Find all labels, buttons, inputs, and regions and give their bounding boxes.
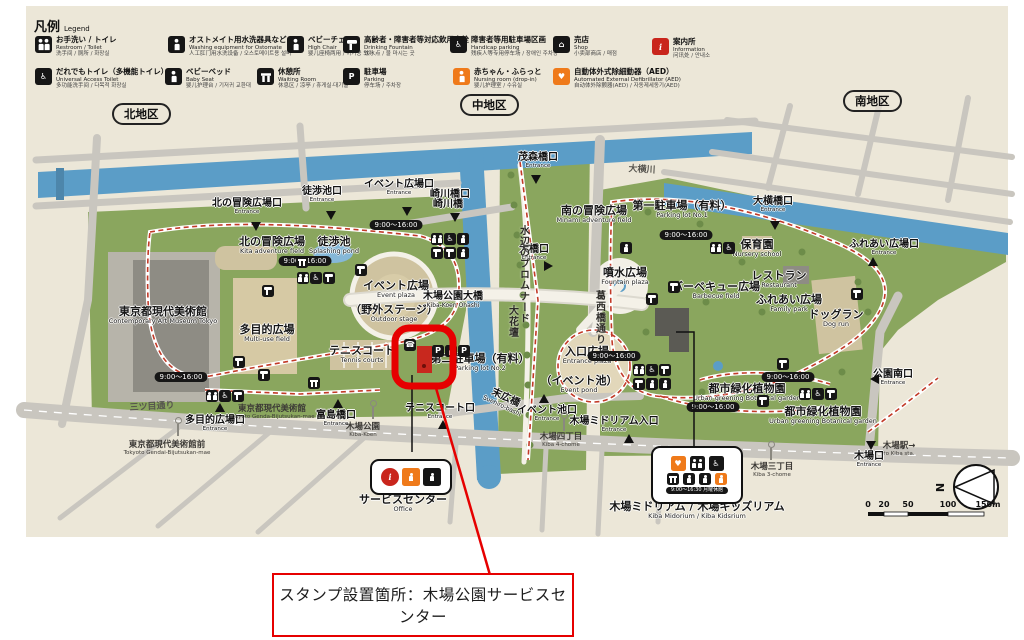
universal-access-toilet-icon: ♿ <box>35 68 52 85</box>
scale-tick-150: 150m <box>975 500 1000 509</box>
aed-icon: ♥ <box>553 68 570 85</box>
legend-item-universal-toilet: ♿だれでもトイレ（多機能トイレ）Universal Access Toilet多… <box>35 68 168 89</box>
legend-item-aed: ♥自動体外式除細動器（AED）Automated External Defibr… <box>553 68 681 89</box>
museum-block <box>108 252 220 402</box>
nursing-room-icon <box>715 473 727 485</box>
restroom-icon <box>35 36 52 53</box>
baby-care-icon <box>423 468 441 486</box>
scale-tick-0: 0 <box>865 500 871 509</box>
ostomate-icon <box>683 473 695 485</box>
legend-item-information: i案内所Information问讯处 / 안내소 <box>652 38 710 59</box>
legend-item-rest-area: 休憩所Waiting Room休息区 / 凉亭 / 휴게실·대기실 <box>257 68 348 89</box>
district-label-center: 中地区 <box>460 94 519 116</box>
scale-bar <box>868 512 984 516</box>
park-map-page: 凡例Legend お手洗い / トイレRestroom / Toilet洗手间 … <box>0 0 1024 640</box>
parking-icon: P <box>343 68 360 85</box>
ostomate-icon <box>168 36 185 53</box>
nursing-room-icon <box>453 68 470 85</box>
legend-item-parking: P駐車場Parking停车场 / 주차장 <box>343 68 401 89</box>
drinking-fountain-icon <box>343 36 360 53</box>
legend-item-restroom: お手洗い / トイレRestroom / Toilet洗手间 / 厕所 / 화장… <box>35 36 116 57</box>
restroom-icon <box>690 456 705 471</box>
information-icon: i <box>652 38 669 55</box>
scale-tick-50: 50 <box>902 500 913 509</box>
waiting-room-icon <box>257 68 274 85</box>
high-chair-icon <box>287 36 304 53</box>
legend-title-en: Legend <box>64 25 90 33</box>
legend-item-nursing: 赤ちゃん・ふらっとNursing room (drop-in)婴儿护理室 / 수… <box>453 68 542 89</box>
aed-icon: ♥ <box>671 456 686 471</box>
kiba-midorium-icon-box: ♥ ♿ 9:00～16:30 月曜休館 <box>651 446 743 504</box>
midorium-hours-badge: 9:00～16:30 月曜休館 <box>666 487 728 494</box>
service-center-icon-box: i <box>370 459 452 495</box>
district-label-south: 南地区 <box>843 90 902 112</box>
universal-access-toilet-icon: ♿ <box>709 456 724 471</box>
compass-north-label: N <box>934 483 947 492</box>
waiting-room-icon <box>667 473 679 485</box>
nursing-room-icon <box>402 468 420 486</box>
legend-item-ostomate: オストメイト用水洗器具などWashing equipment for Ostom… <box>168 36 291 57</box>
legend-title-jp: 凡例 <box>34 20 60 35</box>
stamp-location-callout: スタンプ設置箇所：木場公園サービスセンター <box>272 573 574 637</box>
baby-seat-icon <box>699 473 711 485</box>
stamp-location-text: スタンプ設置箇所：木場公園サービスセンター <box>279 586 567 626</box>
legend-label: お手洗い / トイレ <box>56 36 116 45</box>
legend-item-babybed: ベビーベッドBaby Seat婴儿护理台 / 기저귀 교환대 <box>165 68 251 89</box>
baby-seat-icon <box>165 68 182 85</box>
information-icon: i <box>381 468 399 486</box>
district-label-north: 北地区 <box>112 103 171 125</box>
legend-item-handicap-parking: ♿障害者等用駐車場区画Handicap parking残疾人等专用停车场 / 장… <box>450 36 558 57</box>
shop-icon: ⌂ <box>553 36 570 53</box>
scale-tick-20: 20 <box>878 500 889 509</box>
scale-tick-100: 100 <box>940 500 957 509</box>
legend-item-shop: ⌂売店Shop小卖部商店 / 매점 <box>553 36 617 57</box>
legend-title: 凡例Legend <box>34 16 90 35</box>
handicap-parking-icon: ♿ <box>450 36 467 53</box>
